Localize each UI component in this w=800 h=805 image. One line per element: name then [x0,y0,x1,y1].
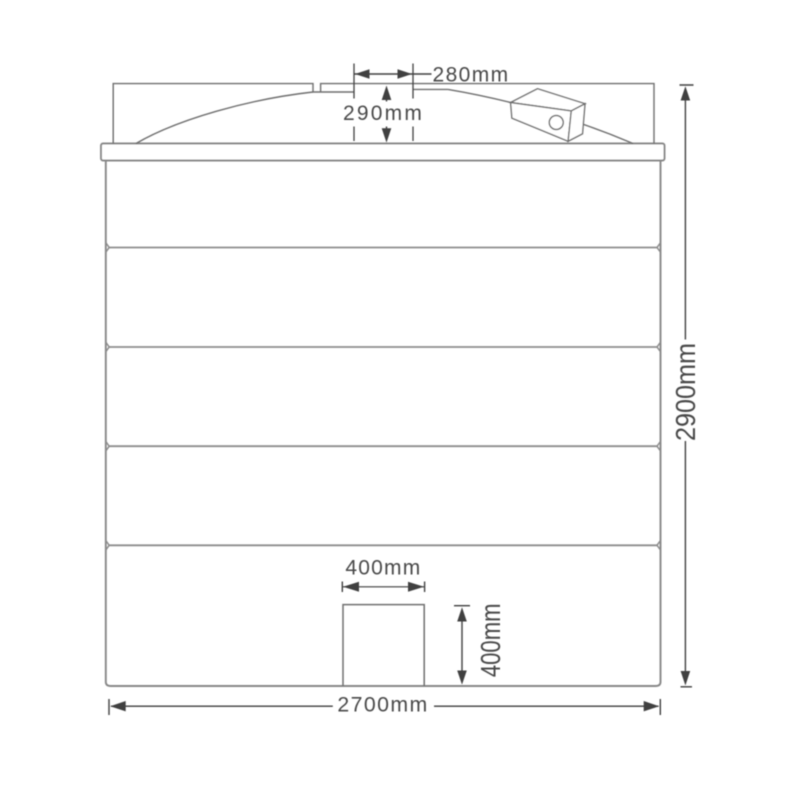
svg-text:280mm: 280mm [432,64,509,87]
svg-text:2700mm: 2700mm [337,693,428,717]
svg-text:400mm: 400mm [345,556,421,579]
svg-text:290mm: 290mm [343,102,424,125]
svg-text:2900mm: 2900mm [670,343,702,441]
svg-text:400mm: 400mm [476,603,507,677]
